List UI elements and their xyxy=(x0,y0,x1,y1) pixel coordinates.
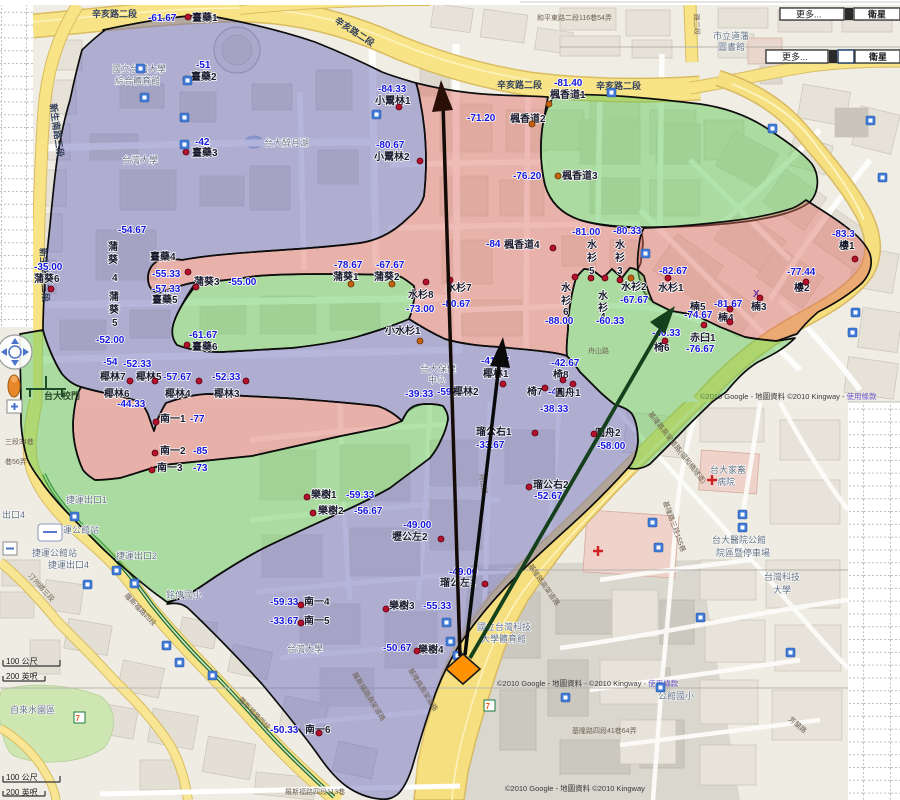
svg-text:銘傳國小: 銘傳國小 xyxy=(166,589,202,600)
svg-text:楓香道1: 楓香道1 xyxy=(550,88,586,101)
svg-text:椰林3: 椰林3 xyxy=(214,387,240,400)
svg-text:水杉1: 水杉1 xyxy=(657,281,684,294)
svg-text:瑠公右2: 瑠公右2 xyxy=(533,478,569,491)
svg-text:樂樹4: 樂樹4 xyxy=(418,643,444,656)
svg-text:4: 4 xyxy=(112,273,118,284)
svg-text:-77: -77 xyxy=(190,414,205,425)
svg-text:-74.67: -74.67 xyxy=(684,310,713,321)
svg-text:-76.20: -76.20 xyxy=(513,171,542,182)
svg-text:-56.67: -56.67 xyxy=(354,506,383,517)
svg-text:基隆路四段41巷64弄: 基隆路四段41巷64弄 xyxy=(572,726,637,735)
svg-text:衫: 衫 xyxy=(586,251,597,264)
svg-text:蒲葵1: 蒲葵1 xyxy=(333,270,359,283)
svg-text:壢公左2: 壢公左2 xyxy=(392,530,428,543)
svg-text:-55.33: -55.33 xyxy=(423,601,452,612)
svg-text:小鬻林1: 小鬻林1 xyxy=(374,94,411,107)
svg-text:臺藥3: 臺藥3 xyxy=(192,146,218,159)
svg-text:南一1: 南一1 xyxy=(160,412,186,425)
svg-text:100 公尺: 100 公尺 xyxy=(6,657,38,666)
svg-text:-82.67: -82.67 xyxy=(659,266,688,277)
svg-text:-80.33: -80.33 xyxy=(613,226,642,237)
svg-text:-59: -59 xyxy=(437,387,452,398)
svg-text:-59.33: -59.33 xyxy=(346,490,375,501)
svg-text:5: 5 xyxy=(112,318,118,329)
svg-text:100 公尺: 100 公尺 xyxy=(6,773,38,782)
svg-text:臺藥5: 臺藥5 xyxy=(152,293,178,306)
svg-text:辛亥路二段: 辛亥路二段 xyxy=(497,79,543,90)
svg-text:-54: -54 xyxy=(103,357,118,368)
svg-text:-57.33: -57.33 xyxy=(152,284,181,295)
svg-text:台灣科技: 台灣科技 xyxy=(764,571,800,582)
svg-text:舟山路: 舟山路 xyxy=(588,346,609,355)
svg-text:-80.67: -80.67 xyxy=(442,299,471,310)
svg-text:水: 水 xyxy=(586,238,598,251)
svg-text:樂樹1: 樂樹1 xyxy=(311,488,337,501)
svg-text:赤臼1: 赤臼1 xyxy=(690,331,716,344)
svg-text:臺藥6: 臺藥6 xyxy=(192,340,218,353)
svg-text:-55.00: -55.00 xyxy=(228,277,257,288)
svg-text:更多...: 更多... xyxy=(796,9,822,20)
svg-text:綜合體育館: 綜合體育館 xyxy=(115,75,160,86)
svg-text:-39.33: -39.33 xyxy=(405,389,434,400)
svg-text:-85: -85 xyxy=(193,446,208,457)
svg-text:200 英呎: 200 英呎 xyxy=(6,787,38,797)
svg-text:-35.00: -35.00 xyxy=(34,262,63,273)
svg-text:南一3: 南一3 xyxy=(157,461,183,474)
svg-text:-38.33: -38.33 xyxy=(540,404,569,415)
svg-text:©2010 Google - 地圖資料 ©2010 King: ©2010 Google - 地圖資料 ©2010 Kingway xyxy=(505,783,645,793)
svg-text:-73: -73 xyxy=(193,463,208,474)
svg-text:-81.40: -81.40 xyxy=(554,78,583,89)
svg-text:圖書館: 圖書館 xyxy=(718,41,745,52)
svg-text:椅7: 椅7 xyxy=(527,385,543,398)
svg-text:-42: -42 xyxy=(195,137,210,148)
svg-text:-71.20: -71.20 xyxy=(467,113,496,124)
svg-text:-60.33: -60.33 xyxy=(596,316,625,327)
svg-text:南一2: 南一2 xyxy=(160,444,186,457)
svg-text:捷運出口1: 捷運出口1 xyxy=(66,494,107,505)
svg-text:-50.33: -50.33 xyxy=(270,725,299,736)
svg-text:-84.33: -84.33 xyxy=(378,84,407,95)
svg-text:-81.00: -81.00 xyxy=(572,227,601,238)
svg-text:-61.67: -61.67 xyxy=(189,330,218,341)
svg-text:椰林7: 椰林7 xyxy=(100,370,126,383)
svg-text:巷56弄: 巷56弄 xyxy=(5,458,27,466)
svg-text:水: 水 xyxy=(614,238,626,251)
svg-text:台灣大學: 台灣大學 xyxy=(287,643,323,654)
svg-text:南一4: 南一4 xyxy=(304,595,330,608)
svg-text:台大醉月湖: 台大醉月湖 xyxy=(264,137,309,148)
svg-text:衫: 衫 xyxy=(560,294,571,307)
svg-text:臺藥2: 臺藥2 xyxy=(191,70,217,83)
svg-text:三段34巷: 三段34巷 xyxy=(5,437,34,446)
svg-text:水杉8: 水杉8 xyxy=(407,288,434,301)
svg-text:大學體育館: 大學體育館 xyxy=(481,633,526,644)
svg-text:圓舟1: 圓舟1 xyxy=(555,386,581,399)
svg-text:7: 7 xyxy=(76,714,81,723)
svg-text:200 英呎: 200 英呎 xyxy=(6,671,38,681)
svg-text:-83.3: -83.3 xyxy=(832,229,855,240)
svg-text:病院: 病院 xyxy=(717,476,735,487)
svg-text:台灣大學: 台灣大學 xyxy=(122,154,158,165)
svg-text:辛亥路二段: 辛亥路二段 xyxy=(92,8,138,19)
svg-text:-52.00: -52.00 xyxy=(96,335,125,346)
svg-text:中心: 中心 xyxy=(428,374,446,385)
svg-text:-55.33: -55.33 xyxy=(152,269,181,280)
svg-text:椰林2: 椰林2 xyxy=(453,385,479,398)
svg-text:-88.00: -88.00 xyxy=(545,316,574,327)
svg-text:樂樹2: 樂樹2 xyxy=(318,504,344,517)
svg-text:水衫2: 水衫2 xyxy=(620,280,647,293)
svg-text:水: 水 xyxy=(560,281,572,294)
svg-text:捷運出口4: 捷運出口4 xyxy=(48,559,89,570)
svg-text:-76.67: -76.67 xyxy=(686,344,715,355)
svg-text:-49.00: -49.00 xyxy=(403,520,432,531)
svg-text:自來水園區: 自來水園區 xyxy=(10,704,55,715)
svg-text:-44.33: -44.33 xyxy=(117,399,146,410)
svg-text:-33.67: -33.67 xyxy=(270,616,299,627)
svg-text:蒲葵6: 蒲葵6 xyxy=(34,272,60,285)
svg-text:羅斯福路四段113巷: 羅斯福路四段113巷 xyxy=(285,787,345,796)
svg-text:-77.44: -77.44 xyxy=(787,267,816,278)
svg-text:捷運出口2: 捷運出口2 xyxy=(116,550,157,561)
svg-text:-73.00: -73.00 xyxy=(406,304,435,315)
svg-text:楠3: 楠3 xyxy=(750,300,767,313)
svg-text:-52.33: -52.33 xyxy=(212,372,241,383)
svg-text:-54.67: -54.67 xyxy=(118,225,147,236)
svg-text:捷運公館站: 捷運公館站 xyxy=(32,547,77,558)
svg-text:大學: 大學 xyxy=(773,584,791,595)
svg-text:-52.33: -52.33 xyxy=(123,359,152,370)
svg-text:台大醫院公館: 台大醫院公館 xyxy=(712,534,766,545)
svg-text:臺藥1: 臺藥1 xyxy=(192,11,218,24)
svg-text:楓香道3: 楓香道3 xyxy=(562,169,598,182)
svg-text:-61.67: -61.67 xyxy=(148,13,177,24)
svg-text:小鬻林2: 小鬻林2 xyxy=(373,150,410,163)
svg-text:葵: 葵 xyxy=(108,253,119,266)
svg-text:樓1: 樓1 xyxy=(839,239,855,252)
svg-text:-59.33: -59.33 xyxy=(270,597,299,608)
svg-text:3: 3 xyxy=(617,266,623,277)
svg-text:衛星: 衛星 xyxy=(867,9,886,20)
svg-text:水: 水 xyxy=(597,289,609,302)
svg-text:院區暨停車場: 院區暨停車場 xyxy=(716,547,770,558)
svg-text:©2010 Google - 地圖資料 - ©2010 Ki: ©2010 Google - 地圖資料 - ©2010 Kingway - 使用… xyxy=(497,678,679,688)
svg-text:7: 7 xyxy=(486,702,491,711)
svg-text:-50.67: -50.67 xyxy=(383,643,412,654)
svg-text:楓香道2: 楓香道2 xyxy=(510,112,546,125)
svg-text:蒲葵2: 蒲葵2 xyxy=(374,270,400,283)
svg-text:小水杉1: 小水杉1 xyxy=(384,324,421,337)
svg-text:-67.67: -67.67 xyxy=(376,260,405,271)
svg-text:蒲: 蒲 xyxy=(109,290,119,303)
svg-text:和平東路二段116巷54弄: 和平東路二段116巷54弄 xyxy=(537,13,612,22)
svg-text:南一5: 南一5 xyxy=(304,614,330,627)
svg-text:葵: 葵 xyxy=(109,303,120,316)
svg-text:-57.67: -57.67 xyxy=(163,372,192,383)
svg-text:更多...: 更多... xyxy=(782,51,808,62)
svg-text:樂樹3: 樂樹3 xyxy=(389,599,415,612)
svg-text:-78.67: -78.67 xyxy=(334,260,363,271)
svg-text:市立道藩: 市立道藩 xyxy=(713,30,749,41)
svg-text:-42.67: -42.67 xyxy=(551,358,580,369)
svg-text:辛亥路二段: 辛亥路二段 xyxy=(596,80,642,91)
svg-text:瑠公右1: 瑠公右1 xyxy=(476,425,512,438)
svg-text:-52.67: -52.67 xyxy=(534,491,563,502)
svg-text:臺藥4: 臺藥4 xyxy=(150,250,176,263)
svg-text:-67.67: -67.67 xyxy=(620,295,649,306)
svg-text:-51: -51 xyxy=(196,60,211,71)
svg-text:出口4: 出口4 xyxy=(2,509,25,520)
svg-text:蒲: 蒲 xyxy=(108,240,118,253)
svg-text:椰林4: 椰林4 xyxy=(165,387,191,400)
svg-text:-84: -84 xyxy=(486,239,501,250)
svg-text:台大家畜: 台大家畜 xyxy=(710,464,746,475)
svg-text:-80.67: -80.67 xyxy=(376,140,405,151)
svg-text:-58.00: -58.00 xyxy=(597,441,626,452)
svg-text:衫: 衫 xyxy=(614,251,625,264)
svg-text:楓香道4: 楓香道4 xyxy=(504,238,540,251)
svg-text:衛星: 衛星 xyxy=(868,51,887,62)
